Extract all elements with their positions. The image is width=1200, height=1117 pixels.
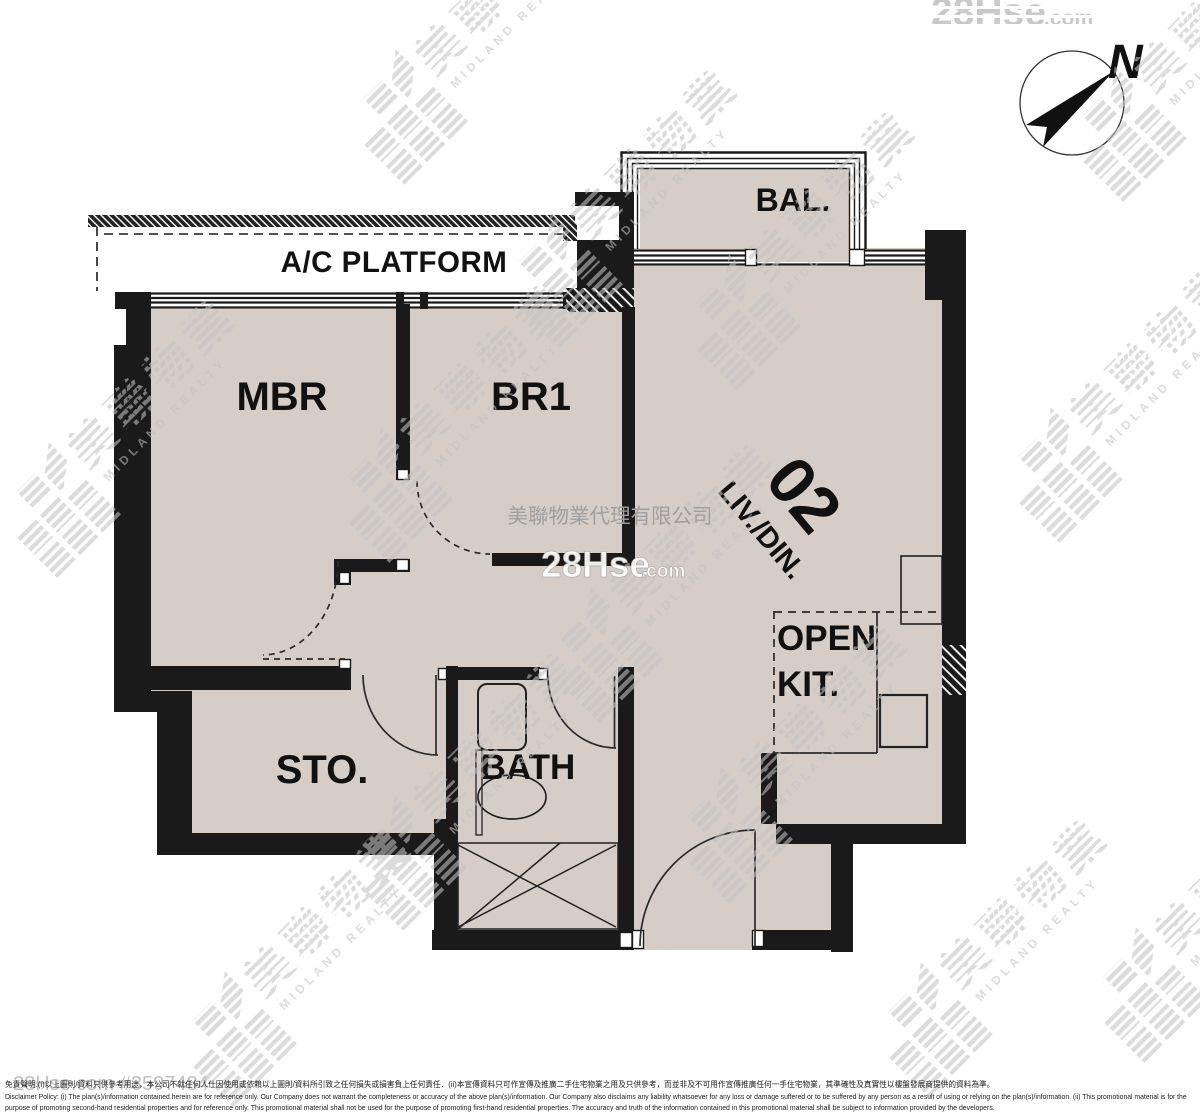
svg-text:MBR: MBR [236, 375, 327, 419]
svg-text:.com: .com [1044, 7, 1093, 30]
svg-text:.com: .com [641, 561, 685, 582]
svg-text:美聯物業代理有限公司: 美聯物業代理有限公司 [508, 505, 713, 528]
svg-text:A/C PLATFORM: A/C PLATFORM [281, 246, 508, 279]
svg-text:28Hse: 28Hse [541, 544, 650, 585]
svg-text:28Hse: 28Hse [931, 0, 1046, 34]
svg-text:STO.: STO. [276, 748, 369, 792]
